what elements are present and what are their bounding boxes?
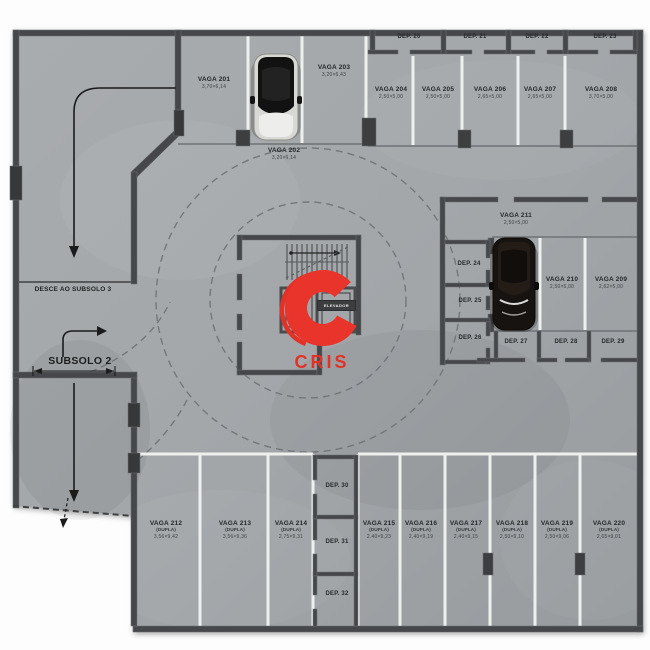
- stall-label-vaga-204: VAGA 2042,50×5,00: [375, 86, 407, 100]
- stall-label-vaga-202: VAGA 2023,20×6,14: [268, 147, 300, 161]
- dep-label-24: DEP. 24: [458, 261, 481, 269]
- stall-label-vaga-201: VAGA 2013,70×6,14: [198, 76, 230, 90]
- dep-label-27: DEP. 27: [505, 339, 528, 347]
- stall-label-vaga-209: VAGA 2092,62×5,00: [595, 276, 627, 290]
- stall-label-vaga-220: VAGA 220(DUPLA)2,65×9,01: [593, 520, 625, 540]
- dep-label-23: DEP. 23: [594, 34, 617, 42]
- car-vaga-211-icon: [489, 238, 539, 332]
- stall-label-vaga-210: VAGA 2102,50×5,00: [546, 276, 578, 290]
- dep-label-25: DEP. 25: [459, 298, 482, 306]
- dep-label-29: DEP. 29: [602, 339, 625, 347]
- ramp-label: DESCE AO SUBSOLO 3: [35, 286, 112, 293]
- dep-label-20: DEP. 20: [398, 34, 421, 42]
- stall-label-vaga-214: VAGA 214(DUPLA)2,75×9,31: [275, 520, 307, 540]
- dep-label-32: DEP. 32: [326, 591, 349, 599]
- stall-label-vaga-208: VAGA 2083,70×5,00: [585, 86, 617, 100]
- stall-label-vaga-216: VAGA 216(DUPLA)2,40×9,19: [405, 520, 437, 540]
- dep-label-21: DEP. 21: [464, 34, 487, 42]
- dep-label-31: DEP. 31: [326, 539, 349, 547]
- stall-label-vaga-215: VAGA 215(DUPLA)2,40×9,23: [363, 520, 395, 540]
- stall-label-vaga-212: VAGA 212(DUPLA)3,56×9,42: [150, 520, 182, 540]
- stall-label-vaga-206: VAGA 2062,65×5,00: [474, 86, 506, 100]
- stall-label-vaga-205: VAGA 2052,50×5,00: [422, 86, 454, 100]
- floor-title: SUBSOLO 2: [48, 355, 111, 367]
- dep-label-26: DEP. 26: [459, 335, 482, 343]
- car-vaga-202-icon: [250, 54, 302, 140]
- stall-label-vaga-218: VAGA 218(DUPLA)2,50×9,10: [496, 520, 528, 540]
- stall-label-vaga-211: VAGA 2112,50×5,00: [500, 212, 532, 226]
- stall-label-vaga-217: VAGA 217(DUPLA)2,40×9,15: [450, 520, 482, 540]
- dep-label-28: DEP. 28: [555, 339, 578, 347]
- dep-label-22: DEP. 22: [526, 34, 549, 42]
- dep-label-30: DEP. 30: [326, 483, 349, 491]
- stall-label-vaga-213: VAGA 213(DUPLA)3,56×9,36: [219, 520, 251, 540]
- elevator-label: ELEVADOR: [317, 300, 356, 311]
- floorplan-page: VAGA 2013,70×6,14 VAGA 2023,20×6,14 VAGA…: [0, 0, 650, 650]
- stall-label-vaga-203: VAGA 2033,20×6,43: [318, 64, 350, 78]
- stall-label-vaga-219: VAGA 219(DUPLA)2,50×9,06: [541, 520, 573, 540]
- stall-label-vaga-207: VAGA 2072,65×5,00: [524, 86, 556, 100]
- logo-text: CRIS: [294, 352, 349, 373]
